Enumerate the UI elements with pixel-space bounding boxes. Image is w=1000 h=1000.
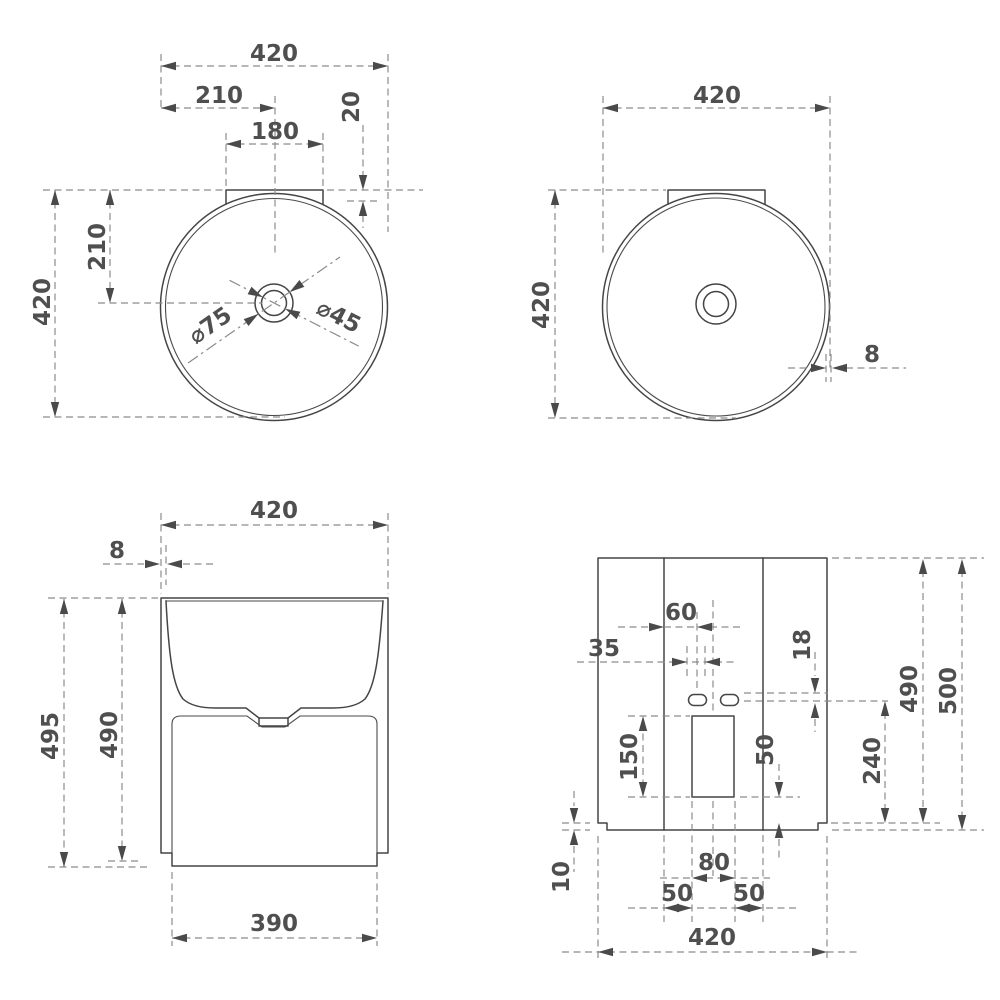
drain-diameter-label: ⌀75 [184, 302, 236, 350]
svg-text:420: 420 [250, 41, 298, 67]
dim-opening-to-base: 50 [740, 734, 800, 862]
svg-text:80: 80 [698, 850, 730, 876]
plan-view-with-fittings: ⌀75 ⌀45 420 210 [30, 41, 423, 421]
basin-outer-rim [603, 194, 830, 421]
svg-text:240: 240 [860, 737, 886, 785]
svg-text:50: 50 [661, 881, 693, 907]
drain-hole-inner [704, 292, 729, 317]
svg-text:420: 420 [30, 278, 56, 326]
svg-text:420: 420 [250, 498, 298, 524]
basin-outer-rim [161, 194, 388, 421]
faucet-diameter-leader: ⌀45 [230, 280, 365, 346]
svg-text:60: 60 [665, 600, 697, 626]
dim-body-height: 490 [97, 599, 138, 861]
dim-overall-width: 420 [603, 83, 830, 372]
svg-text:210: 210 [85, 223, 111, 271]
dim-wall-thickness: 8 [103, 538, 216, 585]
dim-depth-to-center: 210 [85, 190, 262, 303]
svg-text:490: 490 [897, 665, 923, 713]
svg-text:150: 150 [617, 733, 643, 781]
svg-text:420: 420 [688, 925, 736, 951]
svg-text:420: 420 [529, 281, 555, 329]
front-elevation: 420 8 495 490 [38, 498, 388, 946]
basin-inner-rim [166, 199, 383, 416]
service-opening [692, 716, 734, 797]
rear-elevation: 60 35 18 240 [549, 558, 984, 960]
dim-hole-slot-height: 18 [744, 629, 888, 732]
plan-view-plain: 420 420 8 [529, 83, 906, 421]
svg-text:18: 18 [790, 629, 816, 661]
dim-plinth-recess: 10 [549, 791, 590, 893]
svg-text:50: 50 [733, 881, 765, 907]
faucet-diameter-label: ⌀45 [312, 295, 365, 339]
technical-drawing-page: ⌀75 ⌀45 420 210 [0, 0, 1000, 1000]
svg-text:390: 390 [250, 911, 298, 937]
svg-text:8: 8 [864, 342, 880, 368]
dim-opening-height: 150 [617, 716, 690, 797]
mounting-slot-right [721, 695, 739, 706]
mounting-slot-left [689, 695, 707, 706]
pedestal-outline [161, 598, 388, 866]
bowl-profile [166, 601, 383, 718]
svg-text:35: 35 [588, 636, 620, 662]
dim-flange-depth: 20 [327, 91, 423, 228]
svg-text:210: 210 [195, 83, 243, 109]
drain-hole-outer [696, 284, 736, 324]
svg-text:10: 10 [549, 861, 575, 893]
svg-text:20: 20 [339, 91, 365, 123]
svg-text:420: 420 [693, 83, 741, 109]
pedestal-seam [172, 716, 377, 853]
dim-holes-to-base: 240 [860, 701, 889, 823]
svg-text:490: 490 [97, 711, 123, 759]
wall-flange [668, 190, 765, 204]
dim-overall-width: 420 [161, 498, 388, 594]
washbasin-technical-drawing: ⌀75 ⌀45 420 210 [0, 0, 1000, 1000]
svg-text:50: 50 [753, 734, 779, 766]
dim-center-offset: 210 [161, 83, 275, 255]
svg-text:180: 180 [251, 119, 299, 145]
dim-base-width: 390 [172, 872, 377, 946]
dim-seam-gaps: 50 50 [628, 835, 800, 922]
dim-hole-center-offset: 60 [618, 600, 740, 689]
svg-text:495: 495 [38, 712, 64, 760]
basin-inner-rim [607, 198, 825, 416]
svg-text:8: 8 [109, 538, 125, 564]
svg-text:500: 500 [936, 667, 962, 715]
drain-boss [259, 718, 288, 726]
